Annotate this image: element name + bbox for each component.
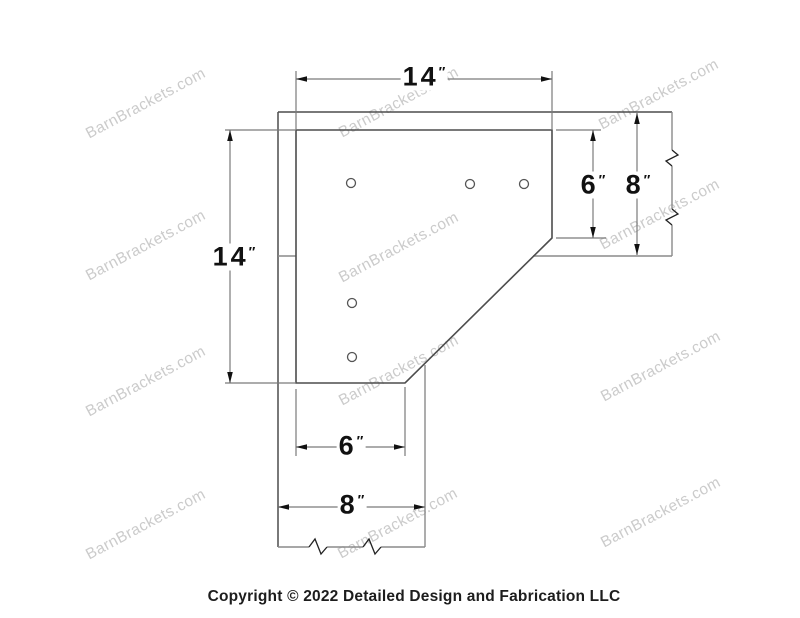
arrowhead	[227, 372, 233, 383]
dim-top-width-value: 14	[403, 62, 439, 92]
arrowhead	[541, 76, 552, 82]
arrowhead	[296, 76, 307, 82]
dim-label-bottom-plate-leg: 6″	[337, 433, 366, 460]
dim-bottom-post-width-value: 8	[340, 490, 358, 520]
bracket-technical-drawing	[0, 0, 800, 618]
dim-label-right-beam-height: 8″	[624, 172, 653, 199]
break-symbol	[666, 209, 678, 225]
break-symbol	[666, 150, 678, 166]
arrowhead	[278, 504, 289, 510]
dim-top-width-unit: ″	[439, 64, 446, 80]
bracket-drawing-page: BarnBrackets.com BarnBrackets.com BarnBr…	[0, 0, 800, 618]
arrowhead	[394, 444, 405, 450]
dim-right-beam-height-unit: ″	[644, 172, 651, 188]
arrowhead	[227, 130, 233, 141]
break-symbol	[363, 539, 381, 554]
bolt-hole	[466, 180, 475, 189]
arrowhead	[634, 113, 640, 124]
dim-label-left-height: 14″	[211, 244, 258, 271]
dim-bottom-plate-leg-unit: ″	[357, 433, 364, 449]
bolt-hole	[348, 353, 357, 362]
bolt-hole	[348, 299, 357, 308]
dim-bottom-plate-leg-value: 6	[339, 431, 357, 461]
dim-label-bottom-post-width: 8″	[338, 492, 367, 519]
bolt-hole	[520, 180, 529, 189]
dim-right-plate-leg-unit: ″	[599, 172, 606, 188]
dim-label-right-plate-leg: 6″	[579, 172, 608, 199]
dim-bottom-post-width-unit: ″	[358, 492, 365, 508]
dim-right-beam-height-value: 8	[626, 170, 644, 200]
arrowhead	[590, 227, 596, 238]
copyright-text: Copyright © 2022 Detailed Design and Fab…	[208, 588, 621, 606]
dim-right-plate-leg-value: 6	[581, 170, 599, 200]
bracket-plate-outline	[296, 130, 552, 383]
arrowhead	[590, 130, 596, 141]
dim-left-height-value: 14	[213, 242, 249, 272]
arrowhead	[634, 244, 640, 255]
dim-left-height-unit: ″	[249, 244, 256, 260]
arrowhead	[296, 444, 307, 450]
break-symbol	[309, 539, 327, 554]
bolt-hole	[347, 179, 356, 188]
arrowhead	[414, 504, 425, 510]
dim-label-top-width: 14″	[401, 64, 448, 91]
